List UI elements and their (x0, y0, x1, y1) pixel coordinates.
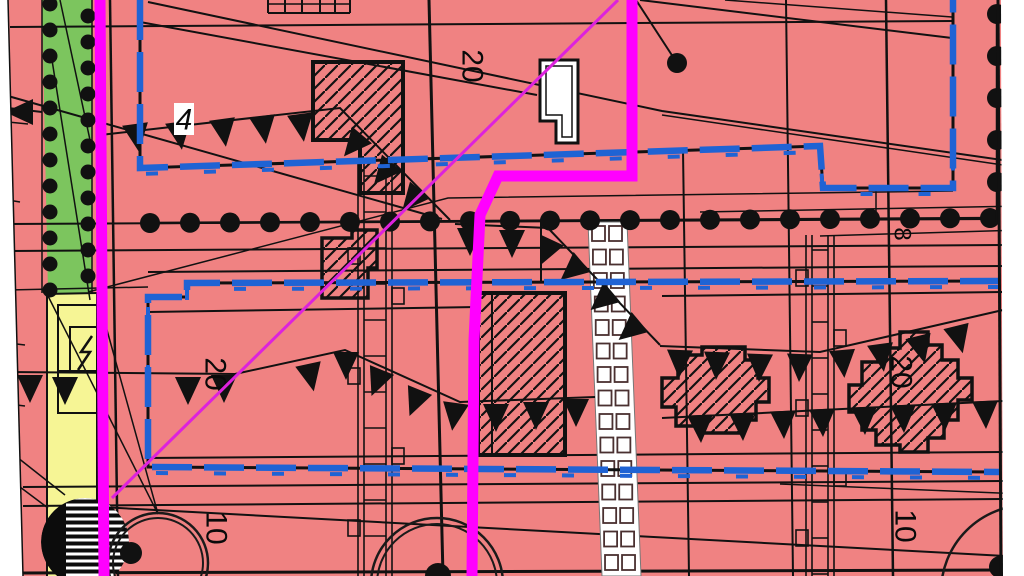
tree-row-main-dot (860, 209, 880, 229)
tree-dot (120, 542, 142, 564)
tree-row-main-dot (740, 209, 760, 229)
tree-row-main-dot (820, 209, 840, 229)
plan-boundary-west (100, 0, 104, 576)
tree-dot (667, 53, 687, 73)
tree-row-main-dot (580, 210, 600, 230)
green-strip-dots-east-dot (81, 113, 96, 128)
green-strip-dots-east-dot (81, 165, 96, 180)
green-strip-dots-west-dot (43, 283, 58, 298)
green-strip-dots-east-dot (81, 35, 96, 50)
tree-row-main-dot (340, 212, 360, 232)
green-strip-dots-east-dot (81, 269, 96, 284)
tree-row-main-dot (620, 210, 640, 230)
green-strip-dots-west-dot (43, 153, 58, 168)
tree-row-main-dot (220, 213, 240, 233)
green-strip-dots-west-dot (43, 49, 58, 64)
green-strip-dots-west-dot (43, 179, 58, 194)
label-depth-10-east: 10 (889, 509, 922, 542)
label-depth-10-west: 10 (200, 511, 233, 544)
zones-layer (8, 0, 1003, 576)
label-depth-20-north: 20 (456, 49, 489, 82)
tree-row-main-dot (300, 212, 320, 232)
green-strip-dots-east-dot (81, 243, 96, 258)
green-strip-dots-west-dot (43, 257, 58, 272)
green-strip-dots-east-dot (81, 217, 96, 232)
tree-row-main-dot (900, 209, 920, 229)
green-strip-dots-west-dot (43, 75, 58, 90)
green-strip-dots-west-dot (43, 231, 58, 246)
tree-row-main-dot (660, 210, 680, 230)
site-plan-svg: 420201020108 (0, 0, 1024, 576)
label-width-8: 8 (889, 227, 916, 240)
tree-row-main-dot (780, 209, 800, 229)
residential-zone-pink (8, 0, 1003, 576)
label-depth-20-east: 20 (885, 355, 918, 388)
green-strip-dots-west-dot (43, 205, 58, 220)
green-strip-dots-east-dot (81, 61, 96, 76)
tree-row-main-dot (420, 211, 440, 231)
tree-row-main-dot (140, 213, 160, 233)
green-strip-dots-east-dot (81, 139, 96, 154)
green-strip-dots-east-dot (81, 87, 96, 102)
green-strip-dots-west-dot (43, 101, 58, 116)
tree-row-main-dot (260, 212, 280, 232)
sheet-margin-east (1001, 0, 1024, 576)
green-strip-dots-west-dot (43, 127, 58, 142)
label-house-number-4: 4 (176, 104, 193, 137)
site-plan-screenshot: 420201020108 (0, 0, 1024, 576)
green-strip-dots-west-dot (43, 23, 58, 38)
tree-row-main-dot (500, 211, 520, 231)
tree-row-main-dot (700, 210, 720, 230)
tree-row-main-dot (940, 208, 960, 228)
tree-row-main-dot (380, 212, 400, 232)
green-strip-dots-east-dot (81, 191, 96, 206)
green-strip-dots-east-dot (81, 9, 96, 24)
tree-row-main-dot (180, 213, 200, 233)
